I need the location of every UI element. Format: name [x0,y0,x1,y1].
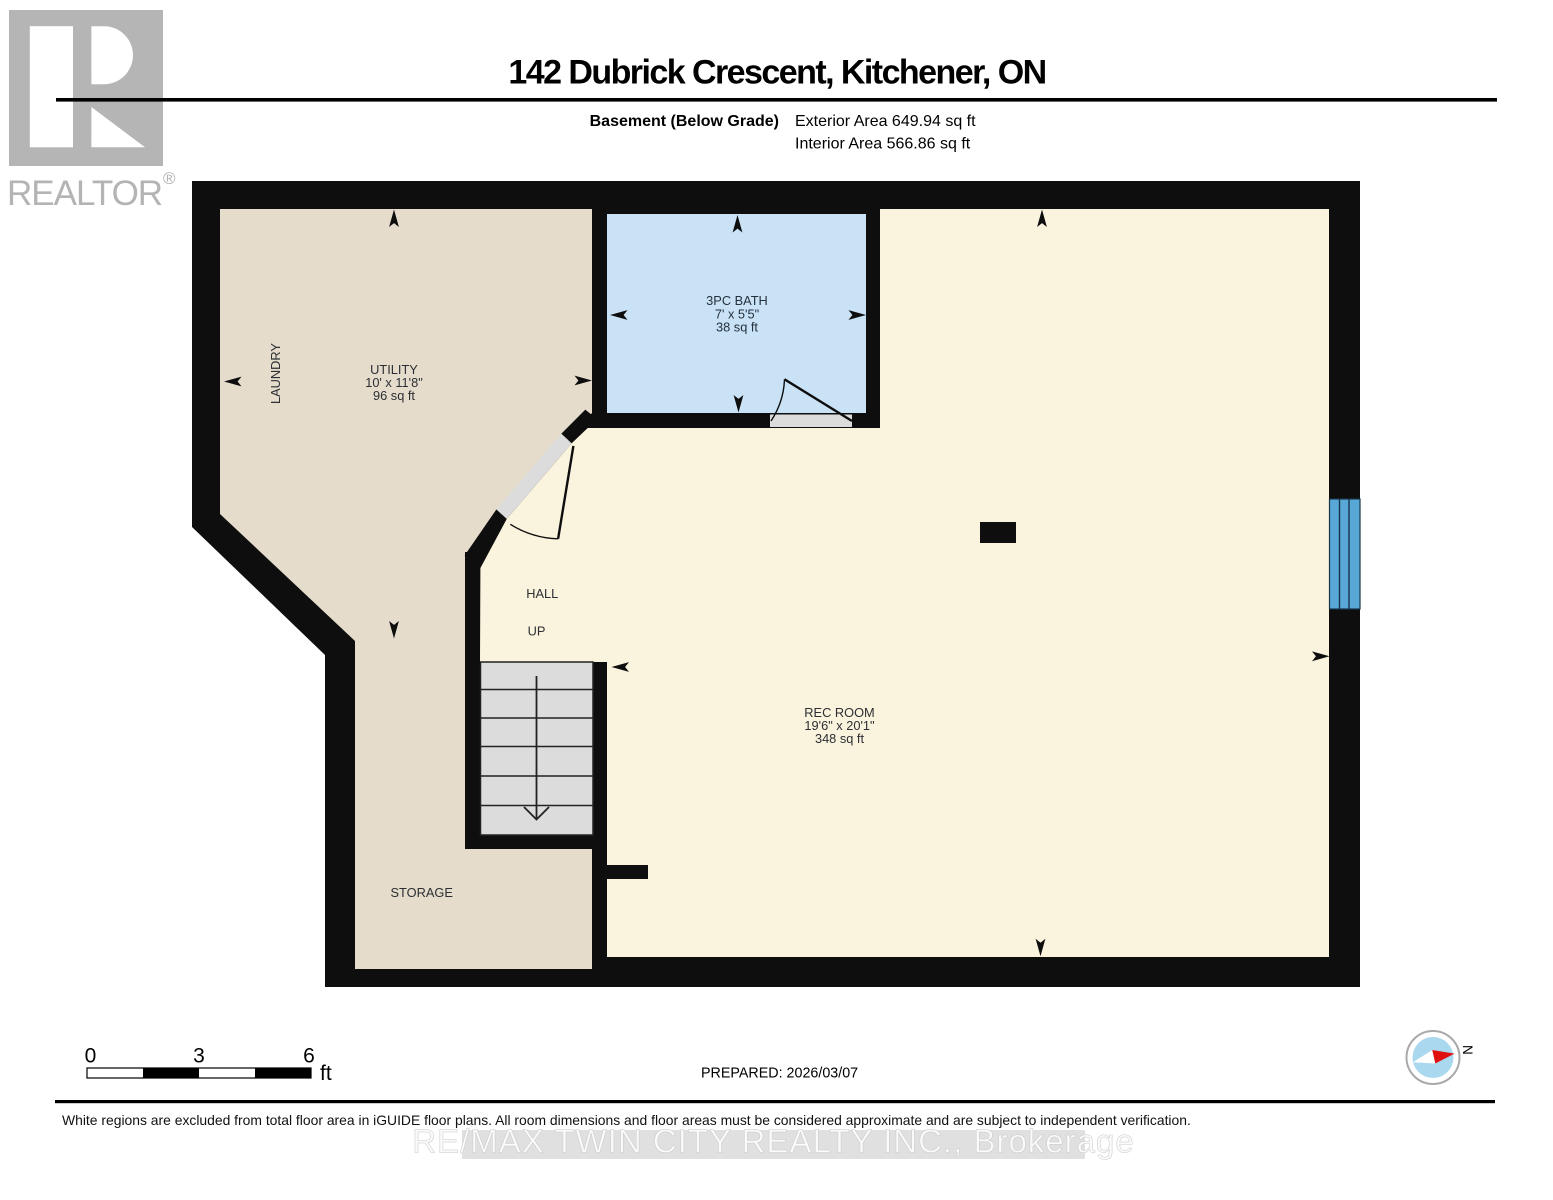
svg-text:STORAGE: STORAGE [391,885,453,900]
svg-text:6: 6 [303,1045,315,1068]
svg-text:3: 3 [193,1045,205,1068]
svg-text:142 Dubrick Crescent, Kitchene: 142 Dubrick Crescent, Kitchener, ON [508,54,1045,92]
svg-text:HALL: HALL [526,586,558,601]
svg-text:UP: UP [528,623,546,638]
svg-text:RE/MAX TWIN CITY REALTY INC.,: RE/MAX TWIN CITY REALTY INC., Brokerage [412,1123,1134,1160]
svg-text:REALTOR: REALTOR [7,174,162,213]
svg-text:PREPARED: 2026/03/07: PREPARED: 2026/03/07 [701,1066,858,1082]
svg-text:0: 0 [85,1045,97,1068]
svg-text:Exterior Area 649.94 sq ft: Exterior Area 649.94 sq ft [795,113,976,130]
svg-text:96 sq ft: 96 sq ft [373,388,415,403]
svg-text:348 sq ft: 348 sq ft [815,731,865,746]
svg-text:LAUNDRY: LAUNDRY [268,343,283,404]
svg-text:Basement (Below Grade): Basement (Below Grade) [590,113,779,130]
svg-text:38 sq ft: 38 sq ft [716,320,758,335]
svg-text:ft: ft [320,1062,332,1085]
svg-text:Interior Area 566.86 sq ft: Interior Area 566.86 sq ft [795,136,971,153]
svg-text:N: N [1460,1045,1475,1055]
svg-text:®: ® [163,169,176,188]
